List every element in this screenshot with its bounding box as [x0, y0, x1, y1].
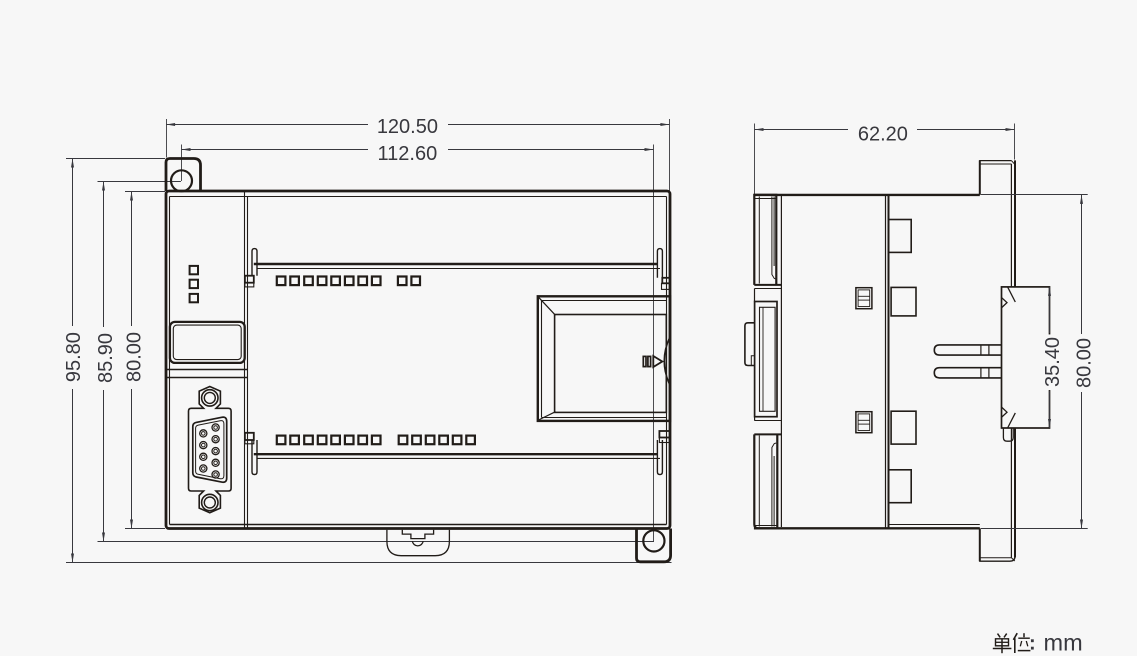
svg-text:35.40: 35.40 [1042, 337, 1064, 387]
svg-text:85.90: 85.90 [95, 333, 117, 383]
svg-text:62.20: 62.20 [858, 123, 908, 145]
svg-text:80.00: 80.00 [123, 332, 145, 382]
svg-text:mm: mm [1044, 629, 1083, 655]
svg-text:112.60: 112.60 [378, 143, 438, 165]
svg-text:120.50: 120.50 [377, 116, 438, 138]
svg-text:80.00: 80.00 [1074, 338, 1096, 388]
svg-text:95.80: 95.80 [63, 332, 85, 382]
